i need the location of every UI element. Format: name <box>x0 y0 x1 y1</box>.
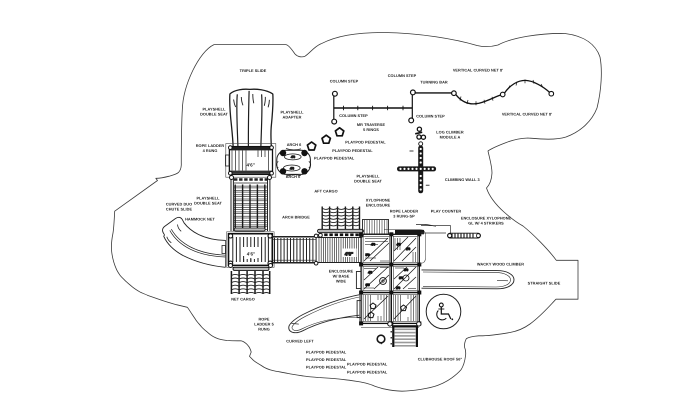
svg-text:ENCLOSURE: ENCLOSURE <box>366 204 391 208</box>
svg-text:4'6": 4'6" <box>247 252 255 257</box>
svg-text:5'0: 5'0 <box>404 268 408 272</box>
svg-text:VERTICAL CURVED NET 8': VERTICAL CURVED NET 8' <box>453 69 503 73</box>
svg-text:PLAYSHELL: PLAYSHELL <box>203 108 227 112</box>
svg-text:ARCH 6: ARCH 6 <box>286 175 301 179</box>
svg-text:VERTICAL CURVED NET 8': VERTICAL CURVED NET 8' <box>502 113 552 117</box>
svg-text:5'0: 5'0 <box>366 253 370 257</box>
svg-text:PLAYPOD PEDESTAL: PLAYPOD PEDESTAL <box>306 358 347 362</box>
svg-text:LADDER 5: LADDER 5 <box>254 323 274 327</box>
svg-text:1'6: 1'6 <box>406 247 410 251</box>
svg-text:PLAYPOD PEDESTAL: PLAYPOD PEDESTAL <box>347 363 388 367</box>
svg-text:2'6: 2'6 <box>396 286 400 290</box>
svg-text:RUNG: RUNG <box>258 328 270 332</box>
svg-text:ARCH 6: ARCH 6 <box>287 143 302 147</box>
svg-text:MR TRAVERSE: MR TRAVERSE <box>357 123 386 127</box>
svg-text:TURNING BAR: TURNING BAR <box>420 81 448 85</box>
svg-text:W/ BASE: W/ BASE <box>333 275 350 279</box>
svg-text:ROPE LADDER: ROPE LADDER <box>390 210 419 214</box>
svg-text:WIDE: WIDE <box>336 280 347 284</box>
svg-text:STRAIGHT SLIDE: STRAIGHT SLIDE <box>528 282 561 286</box>
svg-text:ARCH BRIDGE: ARCH BRIDGE <box>282 216 310 220</box>
svg-text:PLAYSHELL: PLAYSHELL <box>357 175 381 179</box>
svg-text:NET CARGO: NET CARGO <box>231 298 255 302</box>
svg-text:PLAYPOD PEDESTAL: PLAYPOD PEDESTAL <box>314 157 355 161</box>
svg-text:4'6: 4'6 <box>368 271 372 275</box>
svg-text:5 RINGS: 5 RINGS <box>363 128 379 132</box>
svg-text:PLAYSHELL: PLAYSHELL <box>281 111 305 115</box>
svg-text:4'6": 4'6" <box>345 252 353 257</box>
svg-text:DOUBLE SEAT: DOUBLE SEAT <box>200 113 228 117</box>
svg-text:4'6": 4'6" <box>247 163 255 168</box>
svg-text:PLAYPOD PEDESTAL: PLAYPOD PEDESTAL <box>345 141 386 145</box>
svg-text:ROPE LADDER: ROPE LADDER <box>196 144 225 148</box>
svg-text:4 RUNG: 4 RUNG <box>203 149 218 153</box>
svg-text:CLIMBING WALL 3: CLIMBING WALL 3 <box>445 178 480 182</box>
svg-text:CLUBHOUSE ROOF 56": CLUBHOUSE ROOF 56" <box>418 358 463 362</box>
svg-text:MODULE A: MODULE A <box>440 136 461 140</box>
svg-text:AFT CARGO: AFT CARGO <box>314 190 337 194</box>
svg-text:PLAYPOD PEDESTAL: PLAYPOD PEDESTAL <box>347 371 388 375</box>
svg-text:WACKY WOOD CLIMBER: WACKY WOOD CLIMBER <box>477 263 524 267</box>
svg-text:3 RUNG-SP: 3 RUNG-SP <box>393 215 415 219</box>
svg-text:TRIPLE SLIDE: TRIPLE SLIDE <box>240 69 267 73</box>
svg-text:PLAYPOD PEDESTAL: PLAYPOD PEDESTAL <box>332 149 373 153</box>
svg-text:CURVED DUO: CURVED DUO <box>166 203 192 207</box>
svg-text:COLUMN STEP: COLUMN STEP <box>388 74 417 78</box>
svg-text:4'6: 4'6 <box>291 155 295 159</box>
svg-text:COLUMN STEP: COLUMN STEP <box>339 114 368 118</box>
svg-text:ROPE: ROPE <box>258 318 269 322</box>
svg-text:4'0: 4'0 <box>397 243 401 247</box>
svg-text:CHUTE SLIDE: CHUTE SLIDE <box>166 208 193 212</box>
svg-text:COLUMN STEP: COLUMN STEP <box>330 80 359 84</box>
svg-text:PLAYPOD PEDESTAL: PLAYPOD PEDESTAL <box>306 366 347 370</box>
svg-text:4'6: 4'6 <box>371 243 375 247</box>
svg-text:LOG CLIMBER: LOG CLIMBER <box>436 131 464 135</box>
svg-text:DOUBLE SEAT: DOUBLE SEAT <box>194 202 222 206</box>
svg-text:6'0: 6'0 <box>366 283 370 287</box>
svg-text:ENCLOSURE: ENCLOSURE <box>329 270 354 274</box>
svg-text:DOUBLE SEAT: DOUBLE SEAT <box>354 180 382 184</box>
svg-text:PLAYPOD PEDESTAL: PLAYPOD PEDESTAL <box>306 351 347 355</box>
svg-text:8'0: 8'0 <box>399 276 403 280</box>
svg-text:COLUMN STEP: COLUMN STEP <box>416 115 445 119</box>
svg-text:XYLOPHONE: XYLOPHONE <box>366 199 391 203</box>
svg-text:ADAPTER: ADAPTER <box>283 116 302 120</box>
svg-text:GL W/ 4 STRIKERS: GL W/ 4 STRIKERS <box>468 222 504 226</box>
svg-text:ENCLOSURE XYLOPHONE: ENCLOSURE XYLOPHONE <box>461 217 512 221</box>
svg-text:PLAYSHELL: PLAYSHELL <box>197 197 221 201</box>
svg-text:CURVED LEFT: CURVED LEFT <box>286 340 314 344</box>
svg-text:PLAY COUNTER: PLAY COUNTER <box>431 210 462 214</box>
svg-text:HAMMOCK NET: HAMMOCK NET <box>185 218 215 222</box>
svg-text:4'6: 4'6 <box>290 166 294 170</box>
